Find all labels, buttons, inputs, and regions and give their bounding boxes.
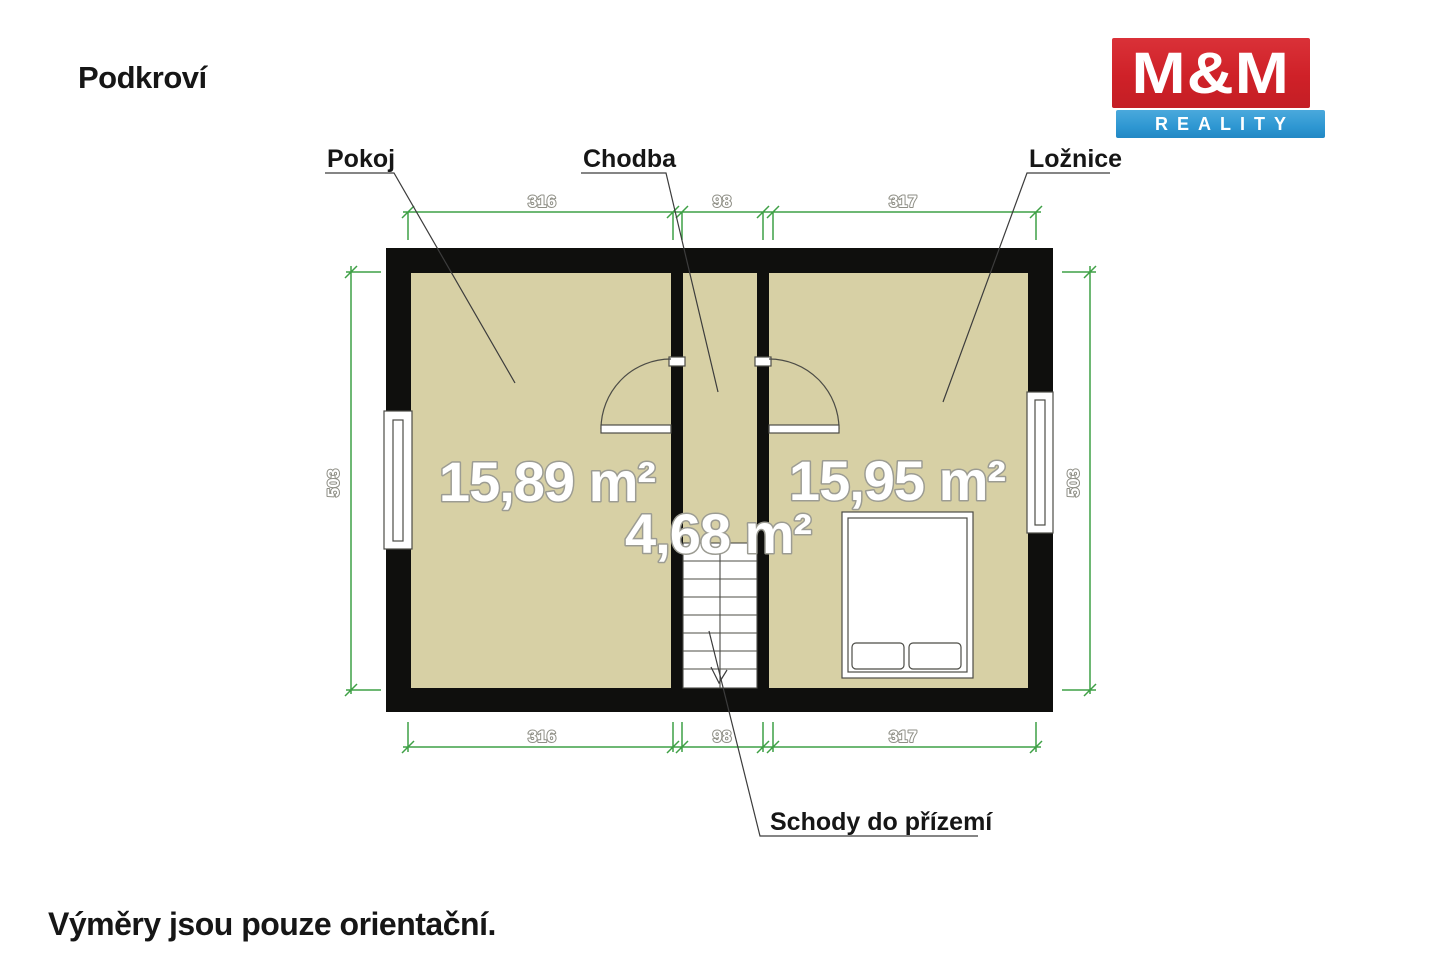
door-leaf-pokoj <box>601 425 671 433</box>
dim-bottom-3: 317 <box>889 727 917 746</box>
door-frame-loznice <box>755 357 771 366</box>
floor-plan-svg: 316 98 317 316 98 317 503 503 Pokoj Chod… <box>0 0 1440 960</box>
stairs-label: Schody do přízemí <box>770 808 993 836</box>
dim-top-2: 98 <box>713 192 732 211</box>
room-label-pokoj: Pokoj <box>327 145 395 173</box>
door-leaf-loznice <box>769 425 839 433</box>
bed-pillow-left <box>852 643 904 669</box>
dim-left: 503 <box>324 469 343 497</box>
interior-wall-left-top <box>671 273 683 358</box>
area-label-pokoj: 15,89 m² <box>439 450 655 513</box>
door-frame-pokoj <box>669 357 685 366</box>
dimension-left <box>345 266 381 696</box>
bed-pillow-right <box>909 643 961 669</box>
interior-wall-right-top <box>757 273 769 358</box>
window-left-frame <box>384 411 412 549</box>
dimension-top <box>402 206 1042 240</box>
bed <box>842 512 973 678</box>
dim-bottom-2: 98 <box>713 727 732 746</box>
window-right-frame <box>1027 392 1053 533</box>
window-left <box>384 411 412 549</box>
floor-plan-page: Podkroví M&M REALITY <box>0 0 1440 960</box>
dim-top-1: 316 <box>528 192 556 211</box>
area-label-chodba: 4,68 m² <box>625 502 811 565</box>
dim-top-3: 317 <box>889 192 917 211</box>
dim-right: 503 <box>1064 469 1083 497</box>
room-label-loznice: Ložnice <box>1029 145 1122 173</box>
window-right <box>1027 392 1053 533</box>
disclaimer-text: Výměry jsou pouze orientační. <box>48 906 496 943</box>
area-label-loznice: 15,95 m² <box>789 449 1005 512</box>
dim-bottom-1: 316 <box>528 727 556 746</box>
room-label-chodba: Chodba <box>583 145 677 173</box>
